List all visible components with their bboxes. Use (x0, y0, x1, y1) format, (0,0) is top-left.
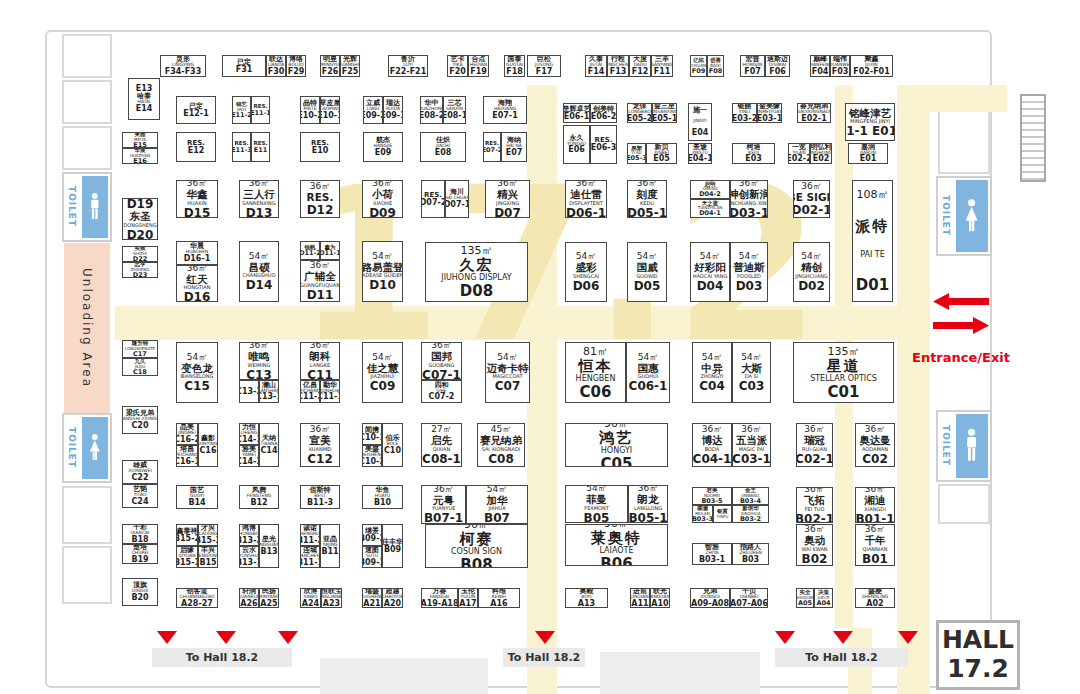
booth-D16-1: 华晨HUACHEND16-1 (176, 241, 218, 265)
booth-B03-5: 若美NUOMEIB03-5 (692, 487, 732, 505)
aisle-top-right (897, 85, 1007, 112)
booth-D09: 36㎡小荷XIAOHED09 (362, 180, 403, 218)
booth-E04-1: 景途JINGTUE04-1 (688, 143, 712, 164)
booth-F26: 明昱MINGYUF26 (320, 55, 340, 77)
booth-C01: 135㎡星道STELLAR OPTICSC01 (793, 342, 894, 403)
booth-E10-2: 品特PINTEE10-2 (300, 96, 320, 124)
booth-F03: 端伟DUANWEIF03 (830, 55, 850, 77)
toilet-label: TOILET (64, 415, 80, 481)
booth-E09: 航杰HANGJIEE09 (363, 132, 403, 162)
booth-银富: 银富YINFU (713, 505, 732, 523)
booth-C07: 54㎡迈奇卡特MAGICCOATC07 (485, 342, 530, 403)
booth-D06-1: 36㎡迪仕雷DISPLAYTENTD06-1 (565, 180, 607, 218)
booth-E08: 佳炽JIACHIE08 (420, 132, 466, 162)
booth-E06: 永久YONGJIUE06 (563, 125, 590, 164)
booth-E08-1: 三芯SANXINE08-1 (443, 96, 466, 124)
booth-E07-2: RES.E07-2 (483, 132, 501, 162)
booth-E10-1: 草皮屋CAOPIWUE10-1 (320, 96, 340, 124)
booth-F17: 巨松JUSONGF17 (527, 55, 561, 77)
booth-D04-1: 天之蓝TIANZHILAND04-1 (690, 199, 730, 218)
structure-room (938, 484, 990, 524)
booth-C06-1: 54㎡国惠GUOHUIC06-1 (626, 342, 670, 403)
booth-D11-1: 鑫为D11-1 (320, 241, 340, 260)
booth-C03-1: 36㎡五当派MAGIC PAIC03-1 (732, 423, 771, 467)
booth-F02-F01: 聚鑫JUXINF02-F01 (850, 55, 893, 77)
booth-C13-2: C13-2 (239, 380, 259, 403)
booth-A23: 恒联宝HENGLIANBAOA23 (321, 588, 342, 608)
booth-B15: 丰兴FENGXINGB15 (198, 546, 218, 568)
booth-E05-3: 易塑YI SUE05-3 (627, 143, 646, 164)
booth-B05-1: 36㎡朗龙LANGLONGB05-1 (628, 485, 668, 523)
booth-B03-4: 金王JINWANGB03-4 (732, 487, 769, 505)
booth-D08: 135㎡久宏JIUHONG DISPLAYD08 (425, 242, 528, 302)
booth-D04: 54㎡好彩阳HAOCAI YANGD04 (690, 242, 730, 302)
entrance-exit-label: Entrance/Exit (901, 350, 1021, 365)
escalator-icon (1020, 94, 1046, 182)
booth-A26: 轩润XUANRUNA26 (239, 588, 259, 608)
booth-A07-A06: 千贝QIANBEIA07-A06 (730, 588, 768, 608)
booth-E05-2: 龙保LONGBAOE05-2 (627, 103, 652, 123)
booth-C07-2: 四和SIHEC07-2 (421, 380, 462, 403)
booth-B03: 指路人ZHILURENB03 (732, 543, 769, 565)
booth-B09-1: 速图SUTUB09-1 (362, 546, 382, 568)
booth-B09-2: 继景B09-2 (362, 524, 382, 546)
booth-D02-1: 36㎡BE SIGND02-1 (793, 180, 830, 218)
booth-A09-A08: 兄弟XIONGDIA09-A08 (690, 588, 730, 608)
hall-label: HALL 17.2 (936, 620, 1020, 690)
arrow-left-icon (933, 293, 989, 310)
booth-B13-2: 鸿博HONGBOB13-2 (239, 524, 259, 546)
booth-B11-1: 连城LIANCHENGB11-1 (300, 546, 320, 568)
aisle-vertical-right (897, 85, 930, 694)
booth-D07: 36㎡精兴JINGXINGD07 (485, 180, 530, 218)
booth-B03-2: 新琪华XINQIHUAB03-2 (732, 505, 769, 523)
outside-block (320, 658, 488, 694)
booth-D13: 36㎡三人行SANRENXINGD13 (239, 180, 279, 218)
toilet-right-female: TOILET (936, 176, 992, 256)
booth-E11-1: RES.E11-1 (251, 96, 270, 124)
booth-E14: E13哈泰HATAIE14 (128, 78, 160, 120)
booth-C11: 36㎡朗科LANGKEC11 (300, 342, 340, 380)
booth-C09: 54㎡佳之慧JIAZHIHUIC09 (362, 342, 403, 403)
booth-A04: 决策JUECEA04 (814, 588, 833, 608)
booth-D05-1: 36㎡刻度KEDUD05-1 (627, 180, 667, 218)
booth-A13: 奥毅AOYIA13 (565, 588, 608, 608)
booth-E15: 美雅MEIYAE15 (122, 132, 158, 148)
booth-C22: 雄威XIONGWEIC22 (122, 460, 158, 484)
down-triangle-icon (157, 631, 177, 644)
down-triangle-icon (898, 631, 918, 644)
floor-plan-hall-17-2: 17.2 灵形LINGXINGF34-F33已定F31联达LIANDAF30博络… (0, 0, 1080, 694)
booth-C10: 伯乐BOLEC10 (382, 423, 403, 467)
booth-A20: 超越CHAOYUEA20 (382, 588, 403, 608)
booth-E03-1: 金美缘JINMEIYUANE03-1 (757, 103, 782, 123)
booth-E01: 嘉润JIARUNE01 (848, 143, 888, 164)
booth-E03: 柯迪KEDIE03 (732, 143, 775, 164)
booth-B11-2: 诚诺CHENGNUOB11-2 (300, 524, 320, 546)
booth-F06: 迪斯迈DISIMAIF06 (765, 55, 790, 77)
booth-F11: 三羊SANYANGF11 (651, 55, 673, 77)
toilet-label: TOILET (938, 178, 954, 254)
booth-C04-1: 36㎡博达BODAC04-1 (692, 423, 732, 467)
booth-A02: 盛菱SHENGLINGA02 (855, 588, 895, 608)
booth-E02: 明弘利MINGHONGLIE02 (810, 143, 832, 164)
booth-D15: 36㎡华鑫HUAXIND15 (176, 180, 218, 218)
booth-C15: 54㎡变色龙BIANSELONGC15 (176, 342, 218, 403)
booth-B19: 楚培CHUPEIB19 (122, 544, 158, 564)
booth-E07-1: 海翔HAIXIANGE07-1 (483, 96, 527, 124)
booth-C08-1: 27㎡启先QIXIANC08-1 (421, 423, 462, 467)
booth-D11-2: 锐帆D11-2 (300, 241, 320, 260)
booth-B13-1: 云水YUNSHUIB13-1 (239, 546, 259, 568)
booth-E03-2: 银丽YINLIE03-2 (732, 103, 757, 123)
booth-A17: 玉伦YULUNA17 (458, 588, 478, 608)
booth-A24: 欣博XINBOA24 (300, 588, 321, 608)
booth-E16: 华展HUAZHANE16 (122, 148, 158, 164)
booth-C04: 54㎡中异ZHONGYIC04 (692, 342, 732, 403)
booth-C06: 81㎡恒本HENGBENC06 (565, 342, 626, 403)
booth-C14-2: 雅美YAMEIC14-2 (239, 445, 259, 467)
booth-B09: 佳丰华B09 (382, 524, 403, 568)
booth-D01: 108㎡派特PAI TED01 (852, 180, 893, 302)
booth-D04-2: 启明QIMINGD04-2 (690, 180, 730, 199)
booth-C02-1: 36㎡瑞冠RUI GUANC02-1 (796, 423, 833, 467)
booth-F18: 国泰GUOTAIF18 (504, 55, 525, 77)
booth-D20: D19东圣DONGSHENGD20 (122, 198, 158, 240)
booth-E09-2: 立威LIWEIE09-2 (363, 96, 383, 124)
booth-F25: 光辉GUANGHUIF25 (340, 55, 360, 77)
booth-C14-1: 力恒LIHENGC14-1 (239, 423, 259, 445)
booth-E05: 新贝XINBEIE05 (646, 143, 677, 164)
structure-room (62, 546, 112, 604)
toilet-right-male: TOILET (936, 410, 992, 482)
booth-C13: 36㎡唯鸣WEIMINGC13 (239, 342, 279, 380)
booth-A19-A18: 方赛FANGSAIA19-A18 (421, 588, 458, 608)
booth-C12: 36㎡宣美XUANMEIC12 (300, 423, 340, 467)
to-hall-bar-1: To Hall 18.2 (503, 648, 585, 667)
booth-C17: 隆升特LONGSHENGTEC17 (122, 340, 158, 358)
booth-C16-2: 晶美JINGMEIC16-2 (176, 423, 198, 445)
booth-B11: 亚晶YAJINGB11 (320, 524, 340, 568)
booth-D07-2: RES.D07-2 (421, 180, 445, 218)
booth-C18: 九久JIUJIUC18 (122, 358, 158, 376)
booth-C02: 36㎡奥达曼AODAMANC02 (855, 423, 895, 467)
booth-C11-1: 勤华QINHUAC11-1 (320, 380, 340, 403)
booth-E02-1: 赛兄纳弟SAIXIONGNADIE02-1 (797, 103, 831, 123)
booth-E07: 海纳HAI NAE07 (501, 132, 527, 162)
booth-F14: 久泰JIUTAIF14 (585, 55, 607, 77)
booth-C03: 54㎡大斯DA SIC03 (732, 342, 771, 403)
booth-D14: 54㎡昌硕CHANGSHUOD14 (239, 241, 279, 302)
booth-D07-1: 海川HAI CHUAND07-1 (445, 180, 469, 218)
booth-E05-1: 金三星JINSANXINGE05-1 (652, 103, 677, 123)
booth-D10: 54㎡路易盖登ROADEASE GUIDENCED10 (362, 241, 403, 302)
booth-A25: 民扬MINYANGA25 (259, 588, 279, 608)
booth-E01-1 E01-2: 铭峰津艺MINGFENG JINYIE01-1 E01-2 (845, 103, 895, 141)
booth-D05: 54㎡国威GUOWEID05 (627, 242, 667, 302)
outside-block (600, 652, 760, 694)
booth-E02-2: 一览YILANE02-2 (788, 143, 810, 164)
booth-B15-1: 启缘QIYUANB15-1 (176, 546, 198, 568)
structure-room (62, 486, 112, 544)
booth-D03: 54㎡普迪斯POOSLEDD03 (730, 242, 768, 302)
booth-F04: 巅峰DIANFENGF04 (810, 55, 830, 77)
structure-room (62, 34, 112, 78)
toilet-label: TOILET (64, 174, 80, 240)
booth-B05: 54㎡菲曼FEAMONTB05 (565, 485, 628, 523)
booth-E10: RES.E10 (300, 132, 340, 162)
booth-C10-1: 闻携C10-1 (362, 423, 382, 445)
booth-A11: 进前JINQIANA11 (630, 588, 650, 608)
booth-C11-2: 亿昌YICHANGC11-2 (300, 380, 320, 403)
arrow-right-icon (933, 317, 989, 334)
booth-C24: 艺韬YITAOC24 (122, 484, 158, 508)
booth-F30: 联达LIANDAF30 (266, 55, 286, 77)
booth-F20: 艺卡YIKAF20 (447, 55, 468, 77)
booth-B06: 90㎡莱奥特LAIAOTEB06 (565, 524, 668, 566)
booth-B12: 凤腾FENGTENGB12 (239, 485, 279, 509)
structure-room (62, 80, 112, 124)
toilet-left-female: TOILET (62, 413, 112, 483)
booth-A16: 科维KEWEIA16 (478, 588, 520, 608)
unloading-area: Unloading Area (64, 243, 110, 413)
down-triangle-icon (278, 631, 298, 644)
booth-D23: 志亨ZHIHENGD23 (122, 262, 158, 278)
booth-C10-2: 美盛MEISHENGC10-2 (362, 445, 382, 467)
booth-E04: 施一JINGYIE04 (688, 103, 712, 141)
booth-F29: 博络BOLUOF29 (286, 55, 306, 77)
male-icon (956, 414, 988, 478)
booth-B18: 千彩QIANCAIB18 (122, 524, 158, 544)
structure-room (938, 108, 990, 174)
booth-D12: 36㎡RES.D12 (300, 180, 340, 218)
female-icon (82, 417, 108, 479)
booth-F08: 佰喜BAIXIF08 (707, 55, 724, 77)
booth-B03-1: 智雅ZHIYAB03-1 (692, 543, 732, 565)
booth-C14: 天纳TIANNAC14 (259, 423, 279, 467)
booth-E11: RES.E11 (251, 132, 270, 162)
booth-A10: 联光LIANGUANGA10 (650, 588, 670, 608)
booth-B15-2: 鑫泰祥B15-2 (176, 524, 198, 546)
female-icon (956, 180, 988, 252)
toilet-left-male: TOILET (62, 172, 112, 242)
booth-B02-1: 36㎡飞拓FEI TUOB02-1 (796, 487, 833, 523)
booth-E06-3: RES.E06-3 (590, 125, 617, 164)
unloading-area-label: Unloading Area (80, 268, 94, 388)
booth-E12-1: 已定E12-1 (176, 96, 216, 124)
down-triangle-icon (833, 631, 853, 644)
booth-B14: 国艺GUOYIB14 (176, 485, 218, 509)
booth-F19: 合点HEDIANF19 (468, 55, 489, 77)
to-hall-bar-0: To Hall 18.2 (152, 648, 292, 667)
booth-F13: 行程XINGCHENGF13 (607, 55, 629, 77)
hall-label-line2: 17.2 (947, 655, 1009, 684)
booth-C08: 45㎡赛兄纳弟SAI XIONGNADIC08 (477, 423, 525, 467)
booth-A28-27: 创客道CHUANGKEZAOA28-27 (176, 588, 218, 608)
booth-D06: 54㎡盛彩SHENGCAID06 (565, 242, 607, 302)
booth-E12: RES.E12 (176, 132, 216, 162)
booth-E11-3: RES.E11-3 (232, 132, 251, 162)
booth-C16: 鑫影XINYINGC16 (198, 423, 218, 467)
booth-B11-3: 佰斯特BESTB11-3 (300, 485, 340, 509)
down-triangle-icon (535, 631, 555, 644)
booth-B02: 36㎡奥动WAI KWANB02 (796, 524, 833, 566)
booth-F22-F21: 鲁沂LUYIF22-F21 (388, 55, 428, 77)
booth-F31: 已定F31 (222, 55, 266, 77)
booth-E11-2: 锦艺JINYIE11-2 (232, 96, 251, 124)
booth-D02: 54㎡精创JINGHCUANGD02 (793, 242, 830, 302)
booth-E09-1: 瑞达RUIDAE09-1 (383, 96, 403, 124)
booth-B20: 顶旗DINGQIB20 (122, 578, 158, 606)
booth-D22: 实致SHIZHID22 (122, 246, 158, 262)
entrance-arrows (933, 293, 989, 334)
booth-B03-3: 墨澜MOLANB03-3 (692, 505, 713, 523)
booth-B15-3: 才兴CAIXINGB15-3 (198, 524, 218, 546)
booth-B07: 54㎡加华JIAHUAB07 (466, 485, 528, 524)
to-hall-bar-2: To Hall 18.2 (775, 648, 908, 667)
booth-B01-1: 36㎡湘迪XIANGDIB01-1 (855, 487, 895, 523)
booth-C16-1: 培昌PEICHANGC16-1 (176, 445, 198, 467)
booth-D16: 36㎡红天HONGTIAND16 (176, 265, 218, 302)
booth-D03-1: 36㎡神创新润SHENCHUANG XINRUND03-1 (730, 180, 768, 218)
booth-C07-1: 36㎡国邦GUOBANGC07-1 (421, 342, 462, 380)
booth-C20: 梁氏兄弟LIANGSHI XIONGDIC20 (122, 406, 158, 434)
down-triangle-icon (775, 631, 795, 644)
male-icon (82, 176, 108, 238)
booth-A21: 瑞盛RUISHENGA21 (362, 588, 382, 608)
booth-F07: 宏晋HONGJINF07 (740, 55, 765, 77)
hall-label-line1: HALL (942, 626, 1014, 655)
booth-F12: 大度DADUF12 (629, 55, 651, 77)
booth-E06-1: 星辉卓艺E06-1 (563, 103, 590, 123)
booth-B08: 90㎡柯赛COSUN SIGNB08 (425, 524, 528, 568)
booth-E06-2: 创美特E06-2 (590, 103, 617, 123)
booth-B10: 华鱼HUAYUB10 (362, 485, 403, 509)
toilet-label: TOILET (938, 412, 954, 480)
booth-B01: 36㎡千年QIANNIANB01 (855, 524, 895, 566)
booth-A05: 实全SHIQUANA05 (796, 588, 814, 608)
booth-F09: 亿炫YIXUANF09 (690, 55, 707, 77)
booth-B07-1: 36㎡元粤YUANYUEB07-1 (421, 485, 466, 524)
booth-C13-1: 澜山LANSHANC13-1 (259, 380, 279, 403)
down-triangle-icon (216, 631, 236, 644)
booth-B13: 星光XINGGUANGB13 (259, 524, 279, 568)
booth-E08-2: 华中HUAZHONGE08-2 (420, 96, 443, 124)
booth-D11: 36㎡广辅全GUANGFUQUAND11 (300, 260, 340, 302)
structure-room (62, 126, 112, 170)
booth-F34-F33: 灵形LINGXINGF34-F33 (160, 55, 206, 77)
booth-C05: 90㎡鸿艺HONGYIC05 (565, 423, 668, 467)
